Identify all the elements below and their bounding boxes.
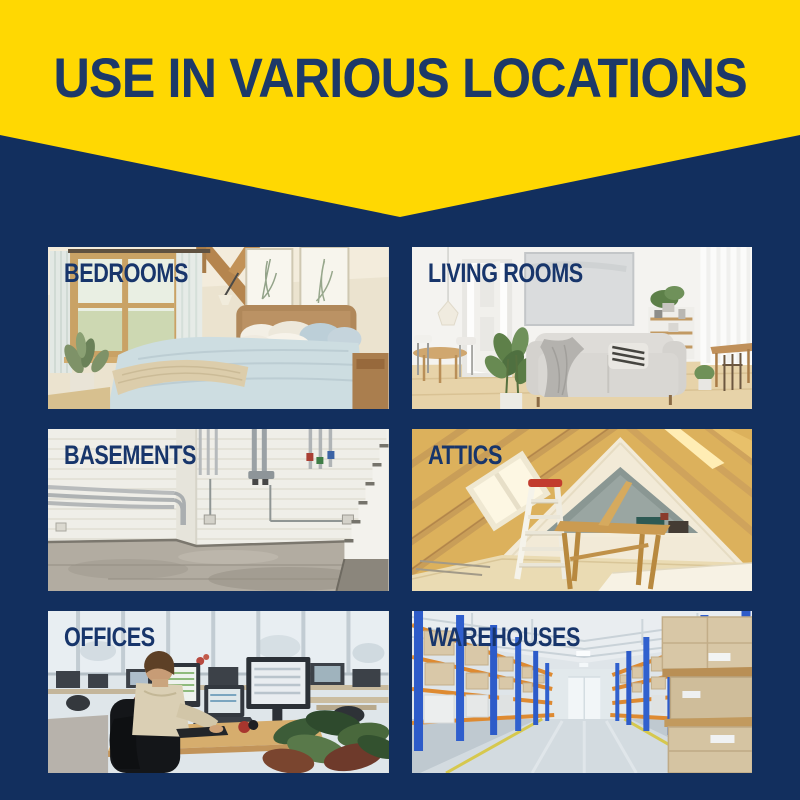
page-title: USE IN VARIOUS LOCATIONS <box>53 45 746 110</box>
banner: USE IN VARIOUS LOCATIONS <box>0 0 800 135</box>
tile-attics: ATTICS <box>412 429 753 591</box>
tile-warehouses: WAREHOUSES <box>412 611 753 773</box>
banner-title-wrap: USE IN VARIOUS LOCATIONS <box>0 24 800 130</box>
tile-label-living-rooms: LIVING ROOMS <box>428 260 583 287</box>
tile-label-bedrooms: BEDROOMS <box>64 260 188 287</box>
tile-bedrooms: BEDROOMS <box>48 247 389 409</box>
tile-label-offices: OFFICES <box>64 624 155 651</box>
tile-living-rooms: LIVING ROOMS <box>412 247 753 409</box>
banner-chevron <box>0 135 800 217</box>
tile-label-attics: ATTICS <box>428 442 502 469</box>
tile-label-basements: BASEMENTS <box>64 442 196 469</box>
tile-label-warehouses: WAREHOUSES <box>428 624 580 651</box>
location-tiles-grid: BEDROOMS <box>48 247 752 773</box>
tile-offices: OFFICES <box>48 611 389 773</box>
tile-basements: BASEMENTS <box>48 429 389 591</box>
